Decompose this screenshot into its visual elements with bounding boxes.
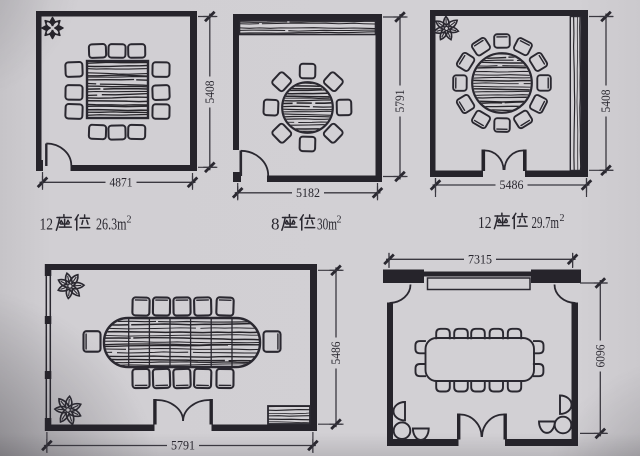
svg-text:30m: 30m (317, 215, 337, 234)
svg-text:8: 8 (271, 215, 280, 234)
svg-text:5791: 5791 (171, 439, 195, 453)
svg-text:5791: 5791 (393, 90, 407, 113)
svg-text:5408: 5408 (203, 81, 217, 104)
svg-text:5182: 5182 (296, 186, 320, 200)
svg-text:12: 12 (40, 215, 54, 234)
svg-text:29.7m: 29.7m (532, 213, 560, 232)
svg-text:4871: 4871 (110, 176, 133, 190)
svg-text:5486: 5486 (500, 178, 524, 192)
svg-text:2: 2 (337, 215, 342, 226)
svg-text:26.3m: 26.3m (96, 215, 127, 234)
svg-text:2: 2 (127, 215, 132, 226)
svg-text:12: 12 (478, 213, 492, 232)
svg-text:6096: 6096 (594, 345, 608, 368)
svg-text:7315: 7315 (468, 253, 492, 267)
svg-text:5408: 5408 (599, 90, 613, 113)
svg-text:5486: 5486 (329, 342, 343, 365)
svg-text:2: 2 (560, 213, 565, 224)
